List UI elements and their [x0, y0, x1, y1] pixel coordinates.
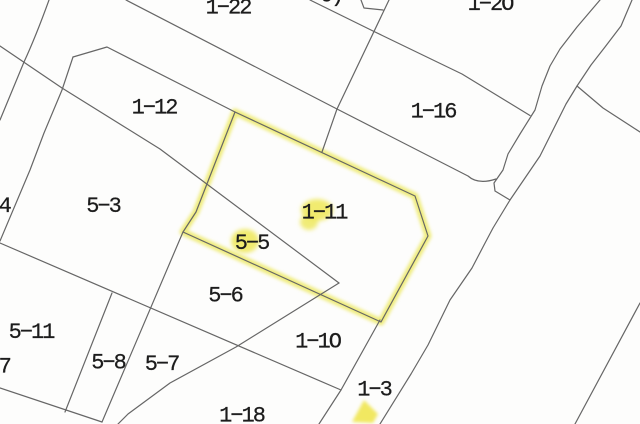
svg-text:1−22: 1−22: [206, 0, 252, 21]
svg-text:5−11: 5−11: [9, 320, 56, 345]
svg-text:6): 6): [320, 0, 342, 9]
svg-text:5−6: 5−6: [208, 284, 242, 309]
svg-text:5−3: 5−3: [86, 194, 120, 219]
svg-text:1−2O: 1−2O: [468, 0, 515, 17]
svg-text:1−16: 1−16: [411, 100, 457, 125]
svg-text:5−8: 5−8: [91, 351, 125, 376]
svg-text:1−18: 1−18: [219, 404, 265, 424]
svg-text:1−3: 1−3: [357, 378, 391, 403]
svg-text:5−5: 5−5: [235, 231, 269, 256]
svg-text:1−11: 1−11: [302, 201, 349, 226]
svg-text:1−1O: 1−1O: [295, 330, 342, 355]
svg-text:1−12: 1−12: [132, 96, 178, 121]
svg-text:5−7: 5−7: [0, 355, 11, 380]
svg-text:5−7: 5−7: [145, 352, 179, 377]
